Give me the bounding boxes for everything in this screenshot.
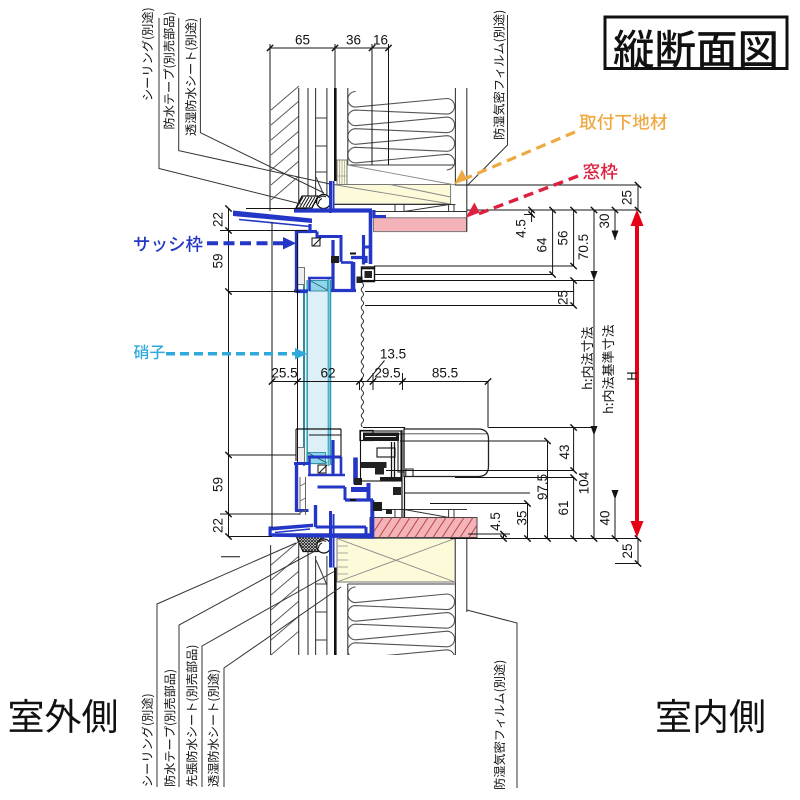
svg-text:56: 56 <box>556 230 571 245</box>
svg-text:97.5: 97.5 <box>535 474 550 500</box>
svg-text:16: 16 <box>373 33 388 48</box>
svg-text:30: 30 <box>597 213 612 228</box>
svg-text:35: 35 <box>515 510 530 525</box>
svg-text:4.5: 4.5 <box>488 512 503 531</box>
svg-text:85.5: 85.5 <box>432 366 458 381</box>
svg-text:104: 104 <box>577 471 592 494</box>
svg-text:13.5: 13.5 <box>380 347 406 362</box>
svg-text:62: 62 <box>320 366 335 381</box>
svg-text:25: 25 <box>556 290 571 305</box>
svg-text:40: 40 <box>598 510 613 525</box>
svg-text:4.5: 4.5 <box>514 219 529 238</box>
svg-text:65: 65 <box>295 33 310 48</box>
svg-text:22: 22 <box>211 518 226 533</box>
svg-text:25.5: 25.5 <box>271 366 297 381</box>
svg-text:70.5: 70.5 <box>576 234 591 260</box>
svg-text:36: 36 <box>346 33 361 48</box>
svg-text:43: 43 <box>557 444 572 459</box>
svg-text:25: 25 <box>620 190 635 205</box>
svg-text:61: 61 <box>556 500 571 515</box>
svg-text:25: 25 <box>620 543 635 558</box>
svg-text:22: 22 <box>211 212 226 227</box>
svg-text:64: 64 <box>535 237 550 253</box>
svg-text:59: 59 <box>211 477 226 492</box>
svg-text:59: 59 <box>211 253 226 268</box>
